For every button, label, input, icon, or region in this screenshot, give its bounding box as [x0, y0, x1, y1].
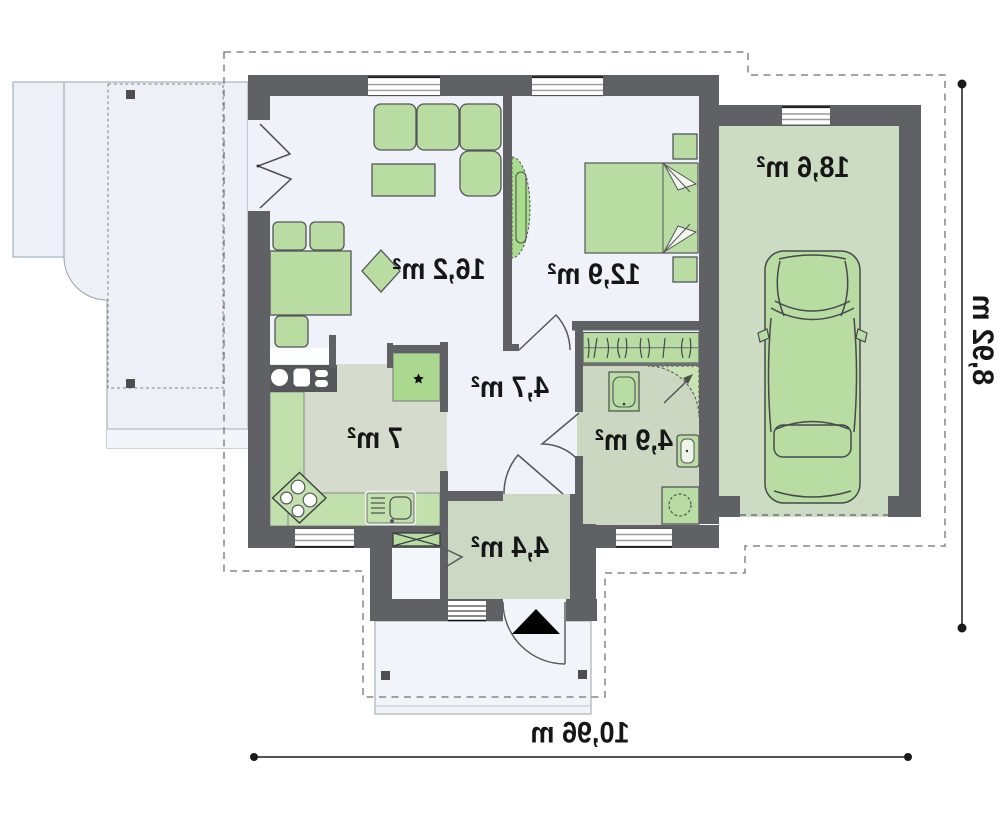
svg-text:7 m²: 7 m²: [347, 422, 402, 456]
svg-text:16,2 m²: 16,2 m²: [393, 253, 486, 287]
svg-text:10,96 m: 10,96 m: [531, 716, 630, 750]
svg-text:4,4 m²: 4,4 m²: [471, 531, 549, 565]
svg-text:8,92 m: 8,92 m: [966, 295, 999, 386]
svg-text:12,9 m²: 12,9 m²: [548, 258, 641, 292]
svg-text:4,9 m²: 4,9 m²: [595, 424, 673, 458]
svg-text:4,7 m²: 4,7 m²: [471, 371, 549, 405]
svg-text:18,6 m²: 18,6 m²: [757, 151, 850, 185]
